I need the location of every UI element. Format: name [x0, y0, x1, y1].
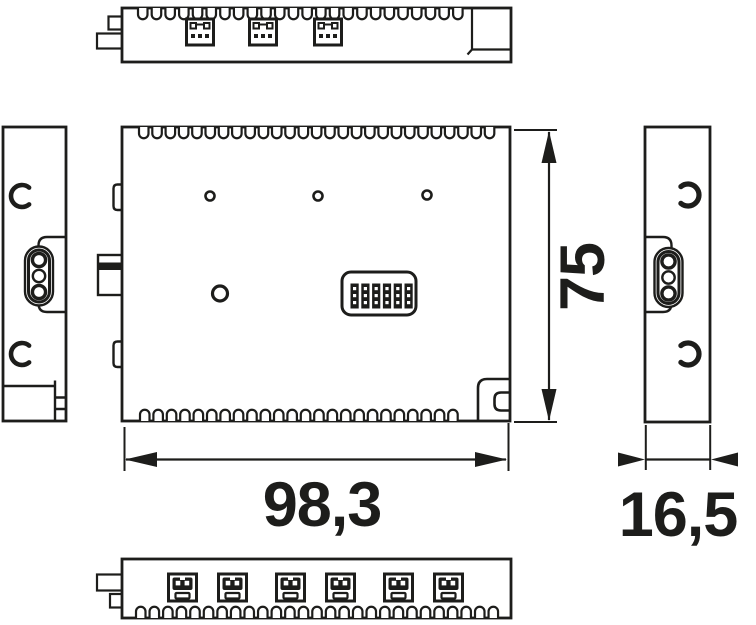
vent-hole [339, 607, 349, 618]
dimension-width-label: 98,3 [263, 470, 382, 540]
vent-hole [314, 410, 324, 421]
vent-hole [179, 127, 189, 138]
mounting-hole [423, 191, 432, 200]
vent-hole [344, 8, 354, 19]
vent-hole [244, 607, 254, 618]
technical-drawing-page: 98,3 75 16,5 [0, 0, 756, 625]
dip-switch-pip [396, 301, 399, 304]
dip-switch-pip [353, 294, 356, 297]
vent-hole [392, 127, 402, 138]
dip-switch-pip [407, 294, 410, 297]
vent-hole [398, 8, 408, 19]
vent-hole [418, 127, 428, 138]
vent-hole [365, 127, 375, 138]
vent-hole [405, 127, 415, 138]
dimension-drawing-canvas: 98,3 75 16,5 [0, 0, 756, 625]
dip-switch-pip [385, 301, 388, 304]
vent-hole [166, 127, 176, 138]
dimension-depth: 16,5 [618, 425, 738, 550]
vent-hole [354, 410, 364, 421]
vent-hole [190, 607, 200, 618]
vent-hole [245, 127, 255, 138]
dip-switch-pip [385, 287, 388, 290]
vent-hole [367, 607, 377, 618]
vent-hole [299, 607, 309, 618]
side-tab-wide [97, 575, 123, 591]
vent-hole [434, 607, 444, 618]
vent-hole [259, 127, 269, 138]
vent-hole [407, 607, 417, 618]
dip-switch-pip [385, 294, 388, 297]
vent-hole [381, 410, 391, 421]
vent-hole [285, 607, 295, 618]
plug-connector [327, 574, 355, 601]
side-tab-small [109, 17, 123, 30]
front-view-outline [122, 127, 510, 421]
vent-hole [261, 410, 271, 421]
vent-hole [378, 127, 388, 138]
plug-connector [219, 574, 247, 601]
vent-hole [150, 607, 160, 618]
mounting-hole [206, 192, 215, 201]
vent-hole [206, 127, 216, 138]
arrowhead-right-icon [475, 452, 507, 467]
vent-hole [220, 8, 230, 19]
vent-hole [234, 410, 244, 421]
vent-hole [445, 127, 455, 138]
vent-hole [220, 410, 230, 421]
vent-hole [380, 607, 390, 618]
vent-hole [448, 607, 458, 618]
dip-switch-block [342, 272, 416, 315]
vent-hole [219, 127, 229, 138]
vent-hole [180, 410, 190, 421]
vent-hole [339, 127, 349, 138]
vent-hole [152, 127, 162, 138]
vent-hole [432, 127, 442, 138]
vent-hole [475, 607, 485, 618]
side-connector-tab [98, 255, 124, 295]
mounting-hole [314, 192, 323, 201]
vent-hole [152, 8, 162, 19]
dip-switch-pip [364, 301, 367, 304]
dip-switch-pip [375, 287, 378, 290]
vent-hole [153, 410, 163, 421]
vent-hole [217, 607, 227, 618]
vent-hole [485, 127, 495, 138]
arrowhead-left-icon [125, 452, 157, 467]
wire-connector [315, 19, 342, 45]
arrowhead-right-icon [618, 453, 645, 467]
dimension-width: 98,3 [125, 423, 509, 540]
plug-connector [169, 574, 197, 601]
vent-hole [448, 410, 458, 421]
vent-hole [408, 410, 418, 421]
vent-hole [312, 607, 322, 618]
arrowhead-left-icon [711, 453, 738, 467]
vent-hole [136, 607, 146, 618]
front-view [98, 127, 510, 421]
dip-switch-pip [407, 301, 410, 304]
pin-connector [25, 247, 53, 306]
vent-hole [394, 607, 404, 618]
dip-switch-pip [396, 294, 399, 297]
vent-hole [426, 8, 436, 19]
plug-connector [385, 574, 413, 601]
vent-hole [204, 607, 214, 618]
vent-hole [341, 410, 351, 421]
vent-hole [287, 410, 297, 421]
dip-switch-pip [375, 294, 378, 297]
dip-switch-pip [353, 301, 356, 304]
extension-lines [646, 425, 710, 470]
dip-switch-pip [364, 294, 367, 297]
vent-hole [138, 8, 148, 19]
vent-hole [326, 607, 336, 618]
vent-hole [357, 8, 367, 19]
vent-holes-row [136, 607, 498, 618]
vent-hole [247, 410, 257, 421]
vent-hole [139, 127, 149, 138]
dimension-depth-label: 16,5 [619, 480, 738, 550]
vent-hole [439, 8, 449, 19]
vent-hole [458, 127, 468, 138]
vent-hole [272, 127, 282, 138]
vent-hole [421, 410, 431, 421]
vent-hole [371, 8, 381, 19]
vent-hole [325, 127, 335, 138]
vent-hole [312, 127, 322, 138]
dip-switch-pip [364, 287, 367, 290]
dip-switch-pip [375, 301, 378, 304]
vent-hole [453, 8, 463, 19]
vent-hole [289, 8, 299, 19]
vent-hole [301, 410, 311, 421]
dip-switch-pip [407, 287, 410, 290]
vent-hole [285, 127, 295, 138]
vent-hole [385, 8, 395, 19]
arrowhead-up-icon [542, 131, 557, 163]
vent-hole [177, 607, 187, 618]
vent-hole [412, 8, 422, 19]
dip-switch-pip [353, 287, 356, 290]
dip-switch-pip [396, 287, 399, 290]
bottom-view [97, 559, 511, 618]
vent-hole [140, 410, 150, 421]
vent-hole [192, 127, 202, 138]
pin-connector [655, 248, 683, 307]
fixing-hole [213, 286, 228, 301]
dimension-height-label: 75 [548, 243, 618, 311]
extension-lines [125, 423, 509, 471]
vent-hole [395, 410, 405, 421]
vent-hole [232, 127, 242, 138]
vent-hole [302, 8, 312, 19]
vent-hole [489, 607, 499, 618]
vent-hole [328, 410, 338, 421]
wire-connector [250, 19, 277, 45]
vent-hole [231, 607, 241, 618]
vent-hole [421, 607, 431, 618]
vent-hole [461, 607, 471, 618]
vent-hole [165, 8, 175, 19]
vent-hole [163, 607, 173, 618]
plug-connector [277, 574, 305, 601]
vent-holes-row [139, 127, 494, 138]
top-view [97, 8, 511, 62]
vent-hole [194, 410, 204, 421]
vent-hole [234, 8, 244, 19]
vent-hole [272, 607, 282, 618]
vent-hole [167, 410, 177, 421]
dimension-height: 75 [514, 130, 618, 422]
vent-hole [435, 410, 445, 421]
vent-hole [352, 127, 362, 138]
left-side-view [3, 127, 66, 421]
wire-connector [187, 19, 214, 45]
vent-hole [258, 607, 268, 618]
vent-hole [368, 410, 378, 421]
arrowhead-down-icon [542, 389, 557, 421]
vent-hole [299, 127, 309, 138]
vent-hole [353, 607, 363, 618]
side-connector-band [98, 263, 124, 271]
vent-hole [207, 410, 217, 421]
vent-hole [274, 410, 284, 421]
vent-hole [472, 127, 482, 138]
right-side-view [645, 127, 710, 422]
side-tab-wide [97, 34, 123, 49]
plug-connector [435, 574, 463, 601]
